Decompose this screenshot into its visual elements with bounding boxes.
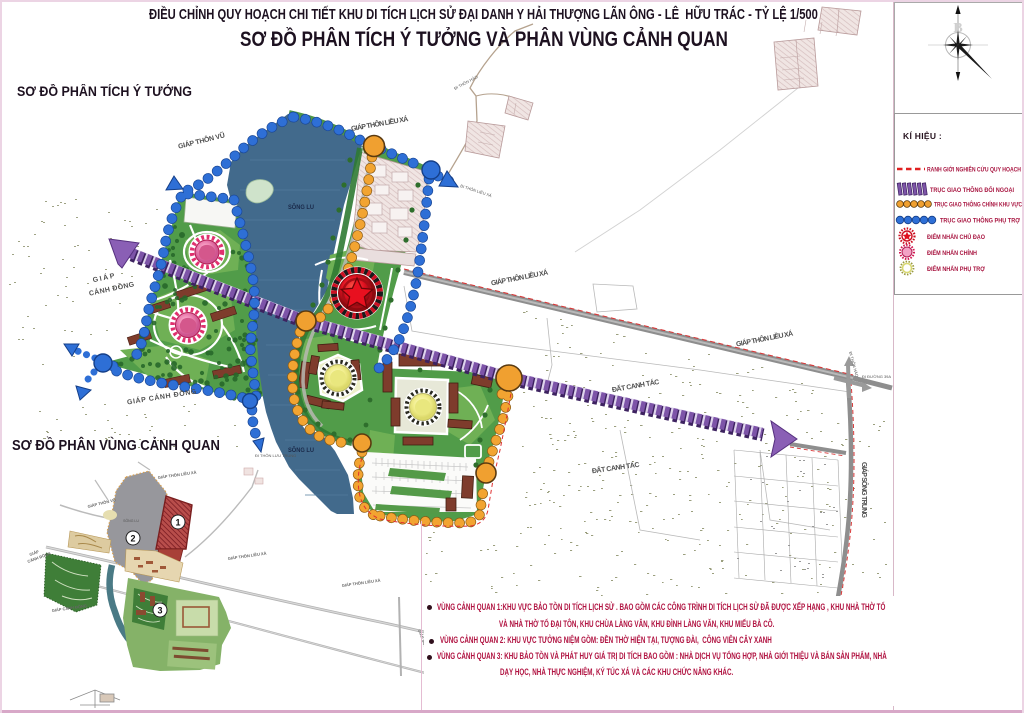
- svg-text:TRỤC GIAO THÔNG CHÍNH KHU VỰC: TRỤC GIAO THÔNG CHÍNH KHU VỰC: [934, 201, 1022, 209]
- svg-text:ĐẤT CANH TÁC: ĐẤT CANH TÁC: [611, 376, 660, 394]
- svg-text:GIÁP THÔN LIỀU XÁ: GIÁP THÔN LIỀU XÁ: [341, 578, 380, 588]
- svg-text:SÔNG LU: SÔNG LU: [123, 518, 139, 523]
- svg-text:2: 2: [130, 534, 135, 544]
- svg-text:ĐIỂM NHẤN CHÍNH: ĐIỂM NHẤN CHÍNH: [927, 249, 977, 257]
- svg-text:ĐI ĐƯỜNG 39A: ĐI ĐƯỜNG 39A: [862, 374, 891, 379]
- svg-text:SÔNG LU: SÔNG LU: [288, 202, 314, 211]
- svg-text:GIÁP THÔN LIỀU XÁ: GIÁP THÔN LIỀU XÁ: [227, 551, 266, 561]
- svg-text:ĐI THÔN LIỀU XÁ: ĐI THÔN LIỀU XÁ: [460, 183, 493, 198]
- svg-text:GIÁP THÔN LIỀU XÁ: GIÁP THÔN LIỀU XÁ: [157, 470, 196, 480]
- svg-text:GIÁP THÔN LIỀU XÁ: GIÁP THÔN LIỀU XÁ: [735, 328, 794, 349]
- svg-text:ĐIỂM NHẤN CHỦ ĐẠO: ĐIỂM NHẤN CHỦ ĐẠO: [927, 234, 985, 241]
- svg-text:ĐI THÔN HÀO: ĐI THÔN HÀO: [453, 74, 478, 91]
- svg-text:3: 3: [157, 606, 162, 616]
- svg-text:ĐI THÔN LƯU TRUNG: ĐI THÔN LƯU TRUNG: [255, 453, 296, 458]
- svg-text:GIÁP CÁNH ĐỒNG: GIÁP CÁNH ĐỒNG: [51, 603, 87, 613]
- svg-text:TRỤC GIAO THÔNG PHỤ TRỢ: TRỤC GIAO THÔNG PHỤ TRỢ: [940, 217, 1021, 225]
- svg-text:GIÁP THÔN VŨ: GIÁP THÔN VŨ: [177, 130, 226, 150]
- svg-text:GIÁP THÔN LIỀU XÁ: GIÁP THÔN LIỀU XÁ: [490, 267, 549, 288]
- svg-text:1: 1: [175, 518, 180, 528]
- svg-text:ĐIỂM NHẤN PHỤ TRỢ: ĐIỂM NHẤN PHỤ TRỢ: [927, 266, 986, 273]
- svg-text:GIÁP: GIÁP: [92, 271, 116, 284]
- svg-text:TRỤC GIAO THÔNG ĐỐI NGOẠI: TRỤC GIAO THÔNG ĐỐI NGOẠI: [930, 186, 1014, 194]
- svg-text:GIÁP SÔNG TRUNG: GIÁP SÔNG TRUNG: [860, 462, 869, 519]
- svg-text:GIÁP THÔN VŨ: GIÁP THÔN VŨ: [87, 497, 116, 509]
- svg-text:GIÁP THÔN LIỀU XÁ: GIÁP THÔN LIỀU XÁ: [350, 113, 409, 133]
- svg-text:RANH GIỚI NGHIÊN CỨU QUY HOẠCH: RANH GIỚI NGHIÊN CỨU QUY HOẠCH: [927, 166, 1021, 174]
